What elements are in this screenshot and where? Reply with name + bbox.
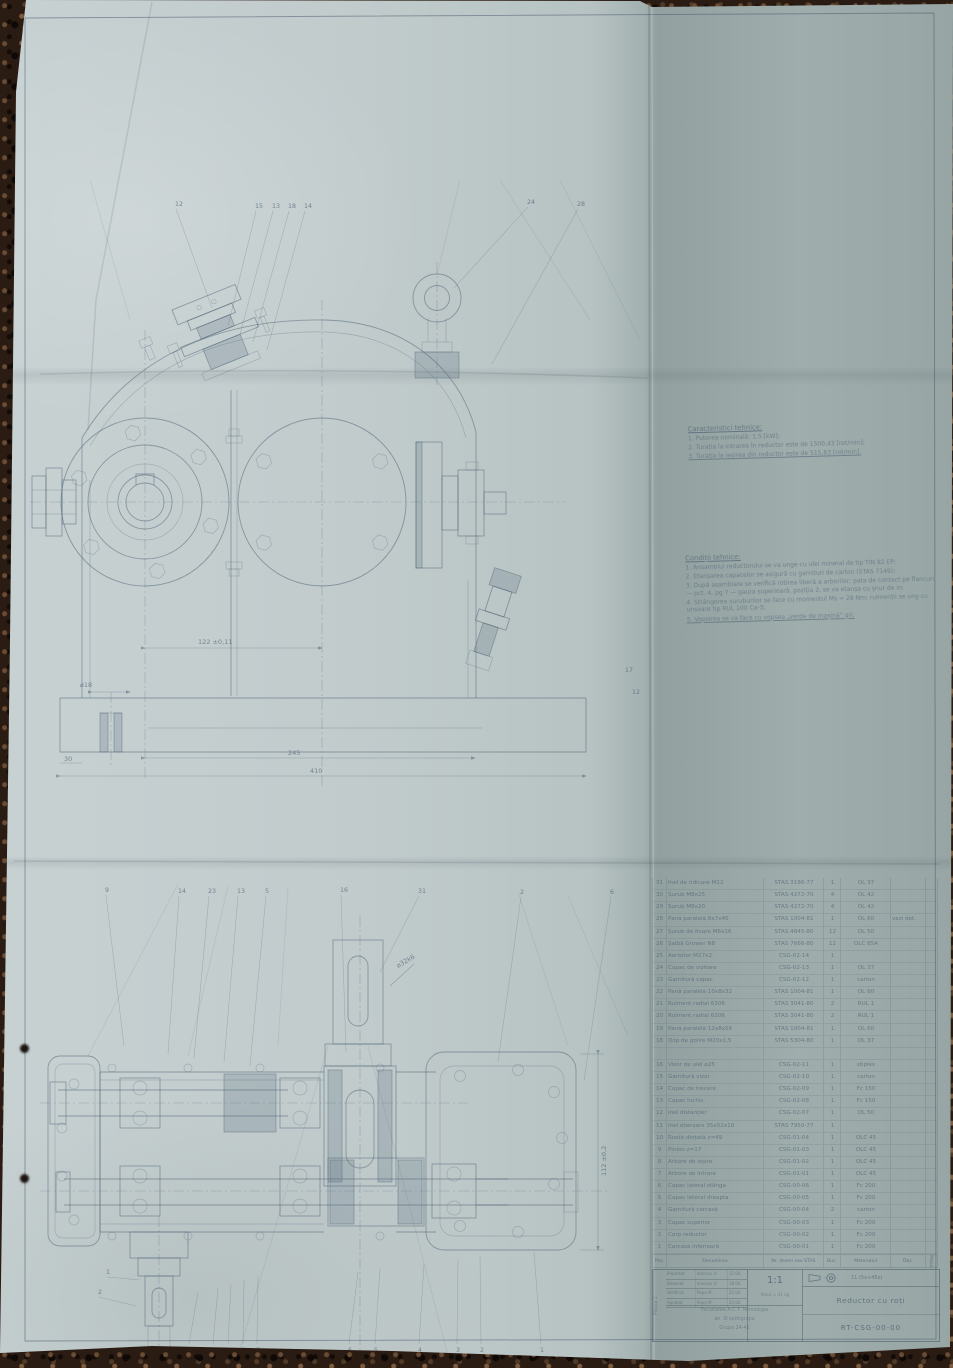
- dim-base-total: 410: [310, 767, 322, 775]
- svg-text:5: 5: [265, 888, 269, 895]
- dimensions: 122 ±0,11 ⌀18 245 410 30: [60, 638, 586, 776]
- header-mat: Materialul: [841, 1254, 891, 1268]
- section-callouts-side: 12: [98, 1269, 140, 1306]
- svg-text:9: 9: [227, 1347, 231, 1354]
- section-view: 112 ±0,2 ⌀32k6 91423135163126 1110987654…: [28, 876, 650, 1368]
- header-obs: Obs.: [891, 1254, 926, 1268]
- table-row: 10Roată dințată z=49CSG-01-041OLC 45: [652, 1133, 938, 1145]
- table-row: 30Șurub M8x25STAS 4272-704OL 42: [652, 890, 938, 902]
- table-row: 19Pană paralelă 12x8x56STAS 1004-811OL 6…: [652, 1024, 938, 1036]
- signature-row: DesenatIonescu V.18.04: [666, 1280, 747, 1290]
- svg-text:17: 17: [625, 667, 633, 674]
- note-items: 1. Ansamblul reductorului se va unge cu …: [685, 557, 939, 623]
- svg-text:14: 14: [178, 888, 186, 895]
- table-row: 14Capac de trecereCSG-02-091Fc 150: [652, 1084, 938, 1096]
- table-row: 24Capac de vizitareCSG-02-131OL 37: [652, 963, 938, 975]
- table-row: 4Garnitură carcasăCSG-00-042carton: [652, 1205, 938, 1217]
- table-row: 26Șaibă Grower N8STAS 7666-8012OLC 65A: [652, 939, 938, 951]
- section-callouts-bottom: 1110987654321: [188, 1252, 544, 1354]
- technical-conditions-note: Condiții tehnice: 1. Ansamblul reductoru…: [685, 547, 939, 625]
- table-row: 12Inel distanțierCSG-02-071OL 50: [652, 1108, 938, 1120]
- table-row: 16Vizor de ulei ⌀25CSG-02-111stiplex: [652, 1060, 938, 1072]
- header-poz: Poz.: [652, 1254, 667, 1268]
- svg-text:8: 8: [242, 1347, 246, 1354]
- dim-shaft-end: ⌀32k6: [395, 953, 416, 970]
- output-shaft-end: [325, 940, 391, 1066]
- left-end-flange: [48, 1056, 100, 1246]
- svg-text:12: 12: [632, 689, 640, 696]
- svg-text:13: 13: [237, 888, 245, 895]
- sheet-number-strip: Planșa 1: [653, 1270, 666, 1342]
- lower-shaft-train: [56, 1158, 578, 1226]
- parts-table-rows: 31Inel de ridicare M12STAS 3186-771OL 37…: [652, 878, 938, 1254]
- upper-shaft-train: [50, 1074, 320, 1132]
- projection-row: 11 (5x+45x): [803, 1270, 939, 1287]
- institution-line: Grupa 24-41: [666, 1324, 803, 1333]
- table-row: 31Inel de ridicare M12STAS 3186-771OL 37: [652, 878, 938, 890]
- parts-table-header: Poz. Denumirea Nr. desen sau STAS Buc. M…: [652, 1254, 938, 1268]
- table-row: 9Pinion z=17CSG-01-031OLC 45: [652, 1145, 938, 1157]
- table-row: 23Garnitură capacCSG-02-121carton: [652, 975, 938, 987]
- svg-text:9: 9: [105, 887, 109, 894]
- title-block: Planșa 1 ProiectatIonescu V.12.04Desenat…: [652, 1269, 940, 1342]
- front-view: 122 ±0,11 ⌀18 245 410 30 121513181424281…: [30, 180, 642, 805]
- right-end-flange: [426, 1052, 576, 1250]
- svg-text:2: 2: [520, 889, 524, 896]
- header-mass: Masa: [926, 1254, 938, 1268]
- institution-line: an. III semigrupa: [666, 1315, 803, 1324]
- table-row: 13Capac închisCSG-02-081Fc 150: [652, 1096, 938, 1108]
- table-row: 11Inel etanșare 35x52x10STAS 7950-771: [652, 1121, 938, 1133]
- dim-foot-offset: 30: [64, 755, 72, 763]
- punch-hole: [20, 1044, 29, 1053]
- table-row: 3Capac superiorCSG-00-031Fc 200: [652, 1218, 938, 1230]
- projection-symbol-icon: [807, 1272, 847, 1284]
- punch-hole: [20, 1174, 29, 1183]
- table-row: 27Șurub de fixare M6x16STAS 4845-8012OL …: [652, 927, 938, 939]
- mass-note: Masa ≈ 41 kg: [748, 1292, 802, 1297]
- table-row: 18Dop de golire M20x1,5STAS 5304-801OL 3…: [652, 1036, 938, 1048]
- centerlines: [30, 262, 565, 788]
- header-name: Denumirea: [667, 1254, 764, 1268]
- svg-text:2: 2: [480, 1347, 484, 1354]
- drawing-title: Reductor cu roți: [803, 1287, 939, 1315]
- table-row: 5Capac lateral dreaptaCSG-00-051Fc 200: [652, 1193, 938, 1205]
- table-row: 8Arbore de ieșireCSG-01-021OLC 45: [652, 1157, 938, 1169]
- institution-block: Facultatea A.C.T. Tehnologiaan. III semi…: [666, 1305, 803, 1342]
- drawing-sheet: 122 ±0,11 ⌀18 245 410 30 121513181424281…: [0, 0, 953, 1368]
- drawing-number: RT-CSG-00-00: [803, 1315, 939, 1342]
- svg-text:1: 1: [106, 1269, 110, 1276]
- note-items: 1. Puterea nominală: 1,5 [kW];2. Turația…: [688, 429, 929, 461]
- table-row: 22Pană paralelă 10x8x32STAS 1004-811OL 6…: [652, 987, 938, 999]
- svg-text:24: 24: [527, 199, 535, 206]
- table-row: 6Capac lateral stângaCSG-00-061Fc 200: [652, 1181, 938, 1193]
- institution-line: Facultatea A.C.T. Tehnologia: [666, 1306, 803, 1315]
- svg-text:7: 7: [256, 1347, 260, 1354]
- table-row: 15Garnitură vizorCSG-02-101carton: [652, 1072, 938, 1084]
- svg-text:18: 18: [288, 203, 296, 210]
- breather-side-bolt: [139, 336, 158, 361]
- table-row: 21Rulment radial 6306STAS 3041-802RUL 1: [652, 999, 938, 1011]
- table-row: 1Carcasă inferioarăCSG-00-011Fc 200: [652, 1242, 938, 1254]
- svg-text:13: 13: [272, 203, 280, 210]
- svg-text:12: 12: [175, 201, 183, 208]
- svg-text:2: 2: [98, 1289, 102, 1296]
- table-row: 7Arbore de intrareCSG-01-011OLC 45: [652, 1169, 938, 1181]
- svg-text:4: 4: [418, 1347, 422, 1354]
- signature-rows: ProiectatIonescu V.12.04DesenatIonescu V…: [666, 1270, 747, 1308]
- signature-row: ProiectatIonescu V.12.04: [666, 1270, 747, 1280]
- scale-value: 1:1: [748, 1270, 802, 1292]
- header-qty: Buc.: [824, 1254, 841, 1268]
- dim-base-inner: 245: [288, 749, 300, 757]
- dim-right-height: 112 ±0,2: [600, 1146, 608, 1176]
- signature-row: VerificatPopa M.22.04: [666, 1289, 747, 1299]
- svg-text:15: 15: [255, 203, 263, 210]
- svg-text:23: 23: [208, 888, 216, 895]
- stray-lines: [90, 180, 640, 340]
- svg-text:1: 1: [540, 1347, 544, 1354]
- drain-plug-drawing: [462, 567, 523, 672]
- svg-text:28: 28: [577, 201, 585, 208]
- breather-cap-drawing: [155, 278, 281, 389]
- output-shaft-side: [416, 442, 506, 568]
- tolerance-note: 11 (5x+45x): [851, 1275, 883, 1281]
- title-area: 11 (5x+45x) Reductor cu roți RT-CSG-00-0…: [803, 1270, 939, 1342]
- table-row: 28Pană paralelă 8x7x40STAS 1004-811OL 60…: [652, 914, 938, 926]
- flange-bolts: [226, 429, 242, 576]
- svg-text:16: 16: [340, 887, 348, 894]
- svg-text:5: 5: [374, 1347, 378, 1354]
- table-row: 25Aerisitor M27x2CSG-02-141: [652, 951, 938, 963]
- table-row: [652, 1048, 938, 1060]
- svg-text:6: 6: [348, 1347, 352, 1354]
- housing-outline: [60, 320, 586, 752]
- svg-text:3: 3: [456, 1347, 460, 1354]
- technical-characteristics-note: Caracteristici tehnice: 1. Puterea nomin…: [688, 419, 929, 463]
- svg-text:31: 31: [418, 888, 426, 895]
- dim-center-distance: 122 ±0,11: [198, 638, 232, 646]
- parts-table: 31Inel de ridicare M12STAS 3186-771OL 37…: [652, 878, 938, 1269]
- photo-background: 122 ±0,11 ⌀18 245 410 30 121513181424281…: [0, 0, 953, 1368]
- table-row: 2Corp reductorCSG-00-021Fc 200: [652, 1230, 938, 1242]
- svg-text:6: 6: [610, 889, 614, 896]
- svg-text:10: 10: [212, 1347, 220, 1354]
- svg-text:11: 11: [188, 1347, 196, 1354]
- header-std: Nr. desen sau STAS: [764, 1254, 824, 1268]
- table-row: 20Rulment radial 6206STAS 3041-802RUL 1: [652, 1011, 938, 1023]
- table-row: 29Șurub M8x20STAS 4272-704OL 42: [652, 902, 938, 914]
- svg-text:14: 14: [304, 203, 312, 210]
- front-view-callouts: 121513181424281712: [175, 199, 640, 696]
- stray-lines: [88, 884, 628, 1356]
- dim-foot-hole: ⌀18: [80, 681, 92, 689]
